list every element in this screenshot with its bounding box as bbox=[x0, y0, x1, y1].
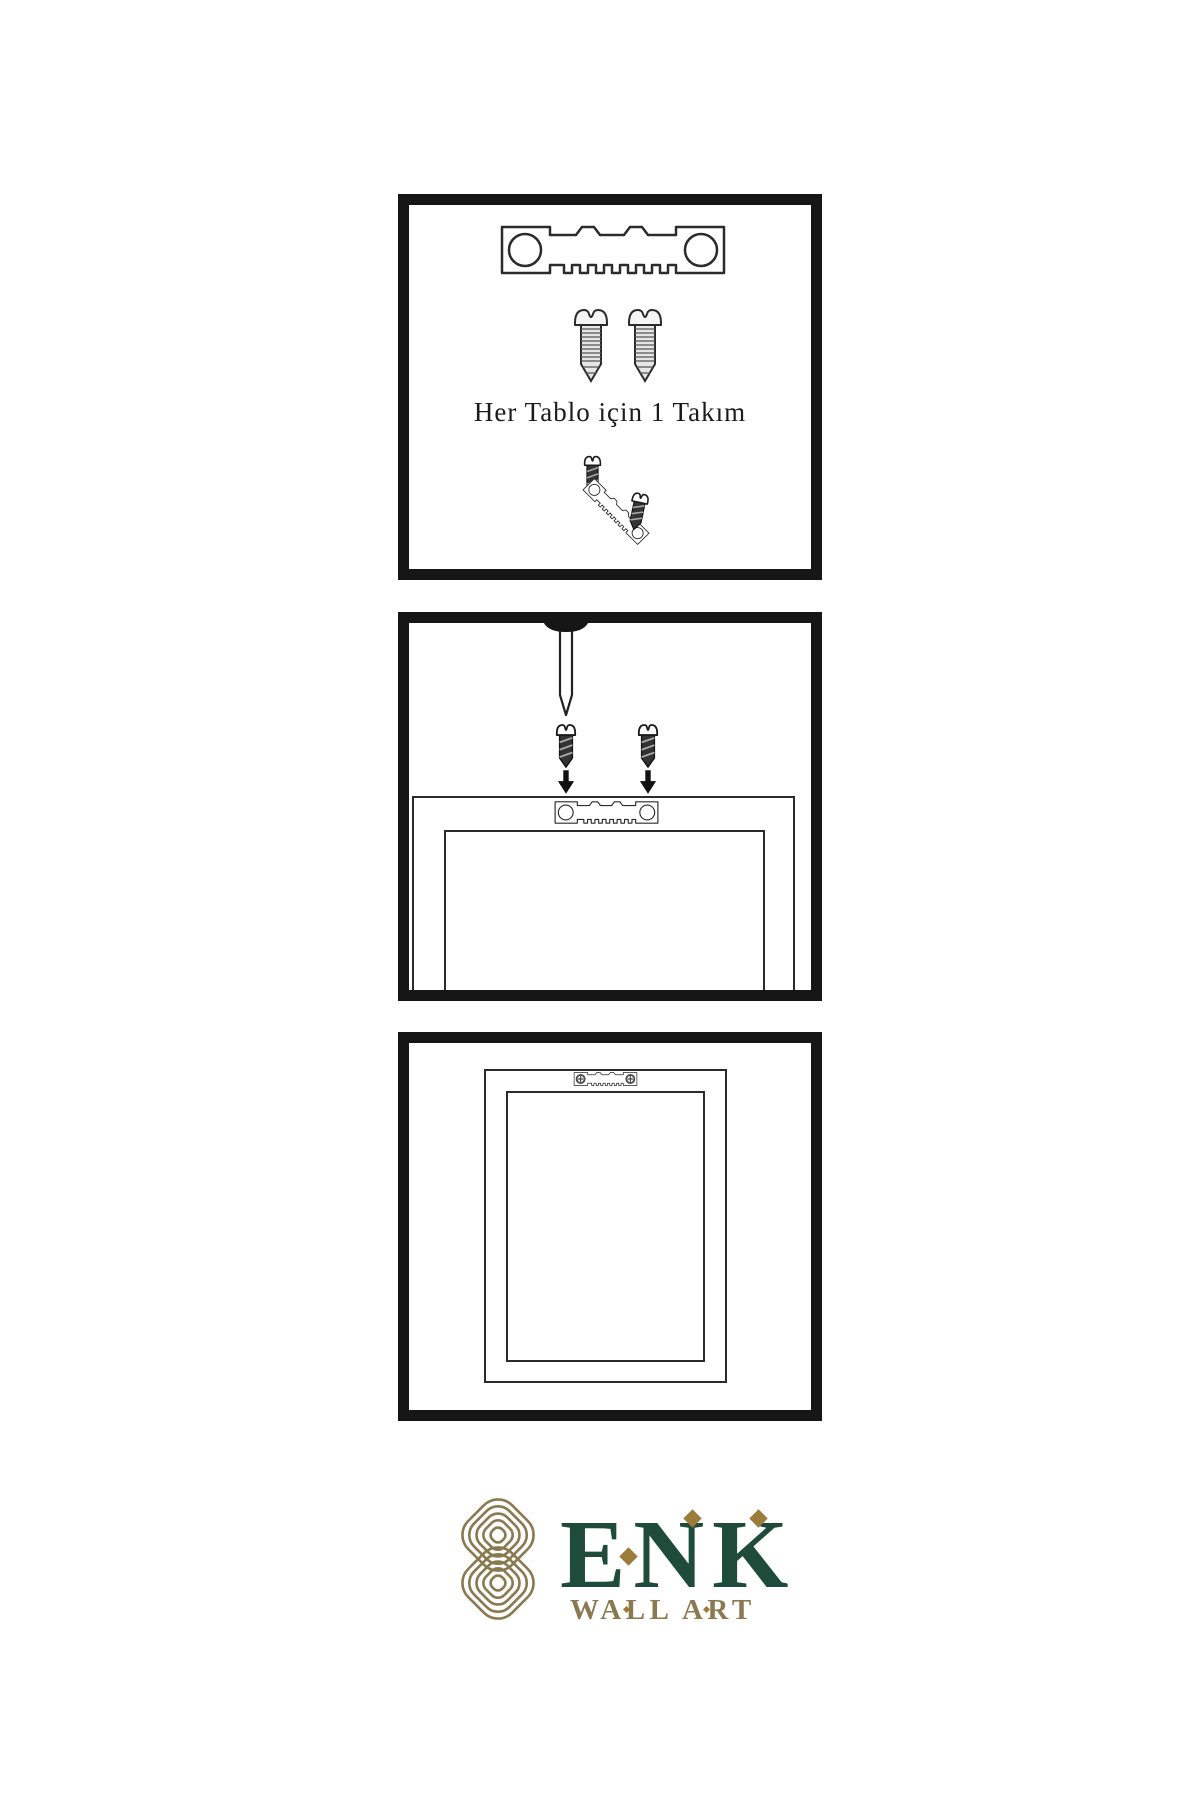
picture-frame-inner bbox=[444, 830, 765, 1001]
screw-icon bbox=[627, 307, 663, 385]
phillips-screw-head-icon bbox=[577, 1075, 584, 1082]
knot-emblem-icon bbox=[438, 1488, 558, 1630]
brand-tagline: WALL ART bbox=[570, 1594, 756, 1627]
sawtooth-hanger-mounted-icon bbox=[573, 1071, 638, 1087]
panel-hardware-kit: Her Tablo için 1 Takım bbox=[398, 194, 822, 580]
screw-icon-dark bbox=[624, 490, 651, 534]
sawtooth-hanger-icon bbox=[553, 800, 660, 825]
down-arrow-icon bbox=[557, 770, 575, 794]
picture-frame-inner bbox=[506, 1091, 705, 1362]
screw-icon-dark bbox=[555, 723, 577, 771]
infographic-page: Her Tablo için 1 Takım bbox=[0, 0, 1200, 1800]
down-arrow-icon bbox=[639, 770, 657, 794]
panel-installation bbox=[398, 612, 822, 1001]
phillips-screw-head-icon bbox=[627, 1075, 634, 1082]
wall-nail-icon bbox=[542, 621, 590, 723]
screw-icon bbox=[573, 307, 609, 385]
sawtooth-hanger-icon bbox=[498, 223, 728, 277]
screw-icon-dark bbox=[637, 723, 659, 771]
panel-hung-picture bbox=[398, 1032, 822, 1421]
kit-caption: Her Tablo için 1 Takım bbox=[409, 397, 811, 428]
